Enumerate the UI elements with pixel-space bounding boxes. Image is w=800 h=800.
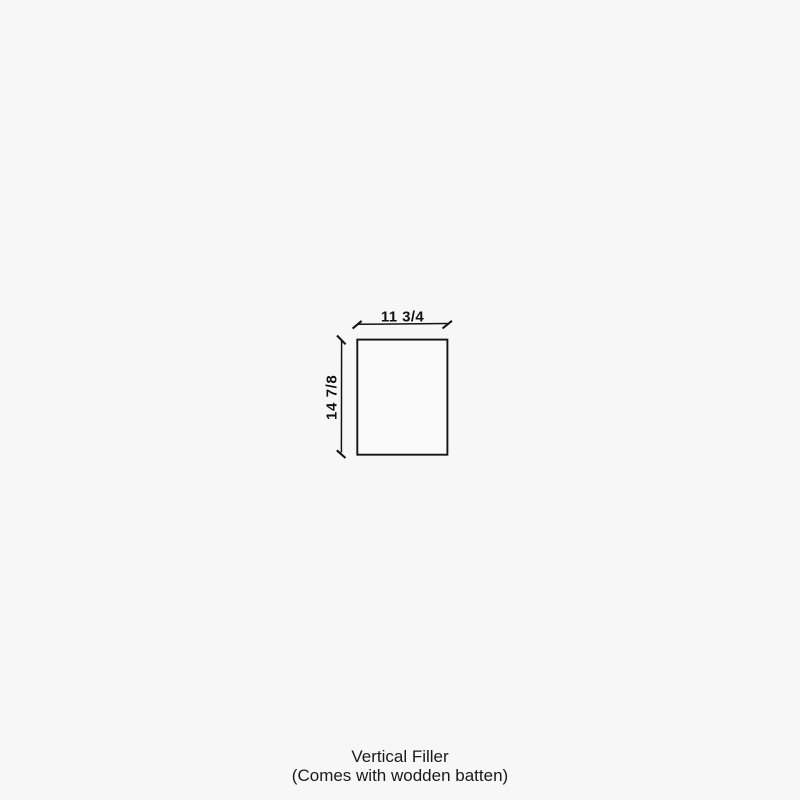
svg-text:11 3/4: 11 3/4 [381, 309, 425, 326]
svg-text:(Comes with wodden batten): (Comes with wodden batten) [292, 766, 508, 785]
svg-text:Vertical Filler: Vertical Filler [351, 747, 449, 766]
svg-text:14 7/8: 14 7/8 [324, 375, 341, 420]
